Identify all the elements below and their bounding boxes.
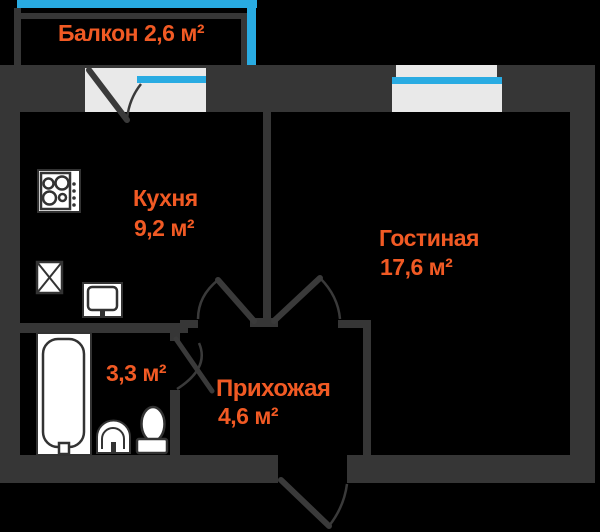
living-window-outer-sill [396, 65, 497, 78]
balcony-wall-top [14, 13, 242, 19]
living-hall-door-icon [274, 278, 340, 321]
room-label-kitchen-area: 9,2 м² [134, 215, 195, 241]
balcony-rail-top [17, 0, 257, 8]
bathroom-sink-icon [97, 421, 130, 453]
room-label-hallway-area: 4,6 м² [218, 403, 279, 429]
kitchen-sink-icon [83, 283, 122, 317]
room-label-balcony: Балкон 2,6 м² [58, 20, 205, 46]
room-label-hallway-name: Прихожая [216, 375, 330, 402]
room-label-living-name: Гостиная [379, 225, 479, 251]
kitchen-window-glass [137, 76, 206, 83]
floor-plan: Балкон 2,6 м² Кухня 9,2 м² Гостиная 17,6… [0, 0, 600, 532]
living-window-glass [392, 77, 502, 84]
bathtub-icon [37, 333, 91, 455]
wall-left [0, 65, 20, 483]
balcony-wall-right [241, 13, 247, 66]
wall-bottom-right [347, 455, 595, 483]
wall-hall-living [363, 320, 371, 455]
balcony-rail-right [247, 0, 256, 66]
bathroom-door-icon [176, 339, 212, 391]
wall-bottom-left [0, 455, 278, 483]
room-label-bathroom-area: 3,3 м² [106, 360, 167, 386]
wall-bathroom-right-lower [170, 390, 180, 455]
wall-right [570, 65, 595, 483]
room-label-kitchen-name: Кухня [133, 185, 198, 211]
kitchen-hall-door-icon [198, 280, 254, 321]
wall-kitchen-living [263, 112, 271, 318]
stove-icon [38, 170, 80, 212]
toilet-icon [137, 407, 167, 453]
room-label-living-area: 17,6 м² [380, 254, 453, 280]
wall-bathroom-top [20, 323, 188, 333]
entrance-door-icon [281, 480, 347, 526]
floor-plan-svg: Балкон 2,6 м² Кухня 9,2 м² Гостиная 17,6… [0, 0, 600, 532]
vent-shaft-icon [37, 262, 62, 293]
